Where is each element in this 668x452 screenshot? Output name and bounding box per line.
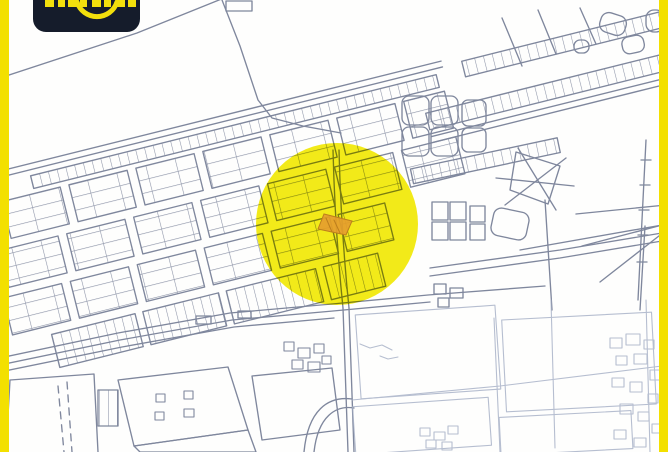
app-screenshot xyxy=(0,0,668,452)
map-image xyxy=(0,0,668,452)
frame-bar-left xyxy=(0,0,9,452)
smile-logo xyxy=(33,0,140,32)
frame-bar-right xyxy=(659,0,668,452)
